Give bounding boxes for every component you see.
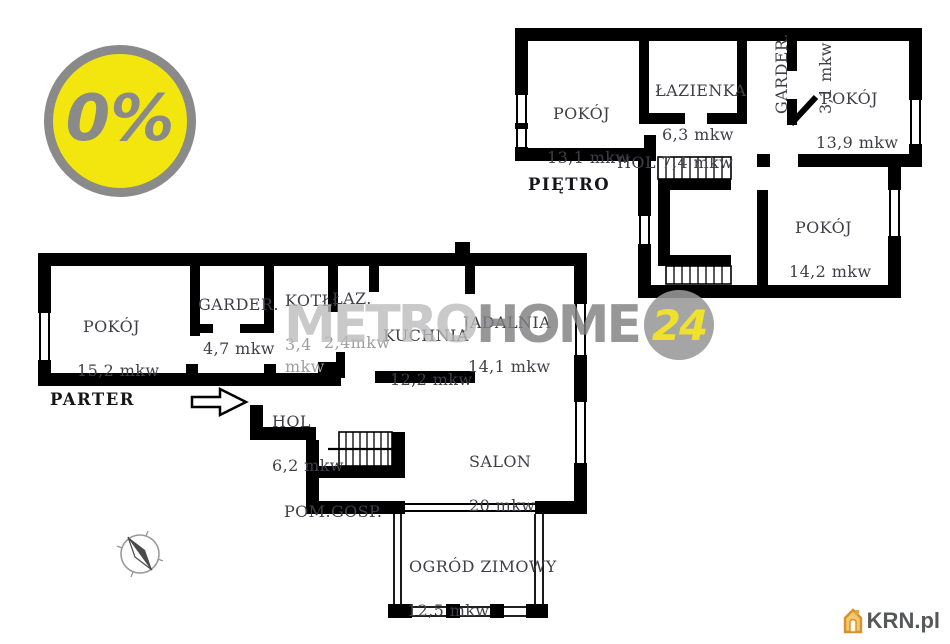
entrance-arrow-icon <box>192 389 246 415</box>
room-label-laz: ŁAZ. 2,4mkw <box>324 266 390 376</box>
room-label-garder-parter: GARDER. 4,7 mkw <box>198 272 279 382</box>
room-label-pietro-pokoj-14-2: POKÓJ 14,2 mkw <box>789 195 871 305</box>
krn-logo: KRN.pl <box>842 608 940 634</box>
floor-label-pietro: PIĘTRO <box>528 175 610 194</box>
room-label-kuchnia: KUCHNIA 12,2 mkw <box>383 303 472 413</box>
room-label-parter-pokoj: POKÓJ 15,2 mkw <box>77 294 159 404</box>
floorplan-image: POKÓJ 13,1 mkw ŁAZIENKA 6,3 mkw GARDER. … <box>0 0 950 644</box>
room-label-ogrod-zimowy: OGRÓD ZIMOWY 12,5 mkw <box>409 534 557 644</box>
room-label-hol-pietro: HOL 7,4 mkw <box>617 130 733 196</box>
room-label-pom-gosp: POM.GOSP. <box>284 479 382 545</box>
krn-logo-text: KRN.pl <box>867 608 940 634</box>
zero-percent-text: 0% <box>66 82 175 156</box>
zero-percent-badge: 0% <box>44 45 196 197</box>
floor-label-parter: PARTER <box>50 390 135 409</box>
room-label-salon: SALON 20 mkw <box>469 429 535 539</box>
krn-house-icon <box>842 608 864 634</box>
room-label-jadalnia: JADALNIA 14,1 mkw <box>463 290 551 400</box>
room-label-pietro-pokoj-13-9: POKÓJ 13,9 mkw <box>816 66 898 176</box>
compass-rose-icon <box>117 531 163 577</box>
